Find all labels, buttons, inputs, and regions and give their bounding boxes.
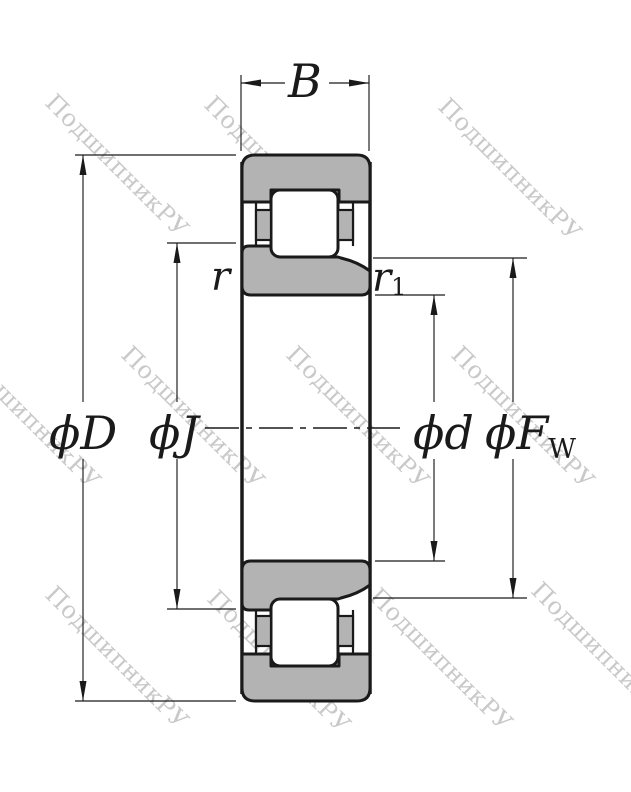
arrowhead-up bbox=[431, 295, 438, 315]
bearing-bottom-section bbox=[242, 561, 370, 701]
watermark-text: ПодшипникРУ bbox=[40, 88, 195, 243]
roller-top bbox=[271, 190, 338, 257]
label-width-B: B bbox=[287, 54, 322, 108]
arrowhead-right bbox=[349, 80, 369, 87]
label-bore-diameter: ϕd bbox=[413, 406, 474, 460]
arrowhead-left bbox=[241, 80, 261, 87]
cage-bar-right-bottom bbox=[338, 616, 353, 646]
label-outer-diameter: ϕD bbox=[49, 406, 117, 460]
cage-bar-right-top bbox=[338, 210, 353, 240]
arrowhead-down bbox=[80, 681, 87, 701]
arrowhead-up bbox=[80, 155, 87, 175]
arrowhead-down bbox=[510, 578, 517, 598]
bearing-drawing-canvas: ПодшипникРУ ПодшипникРУ ПодшипникРУ Подш… bbox=[0, 0, 631, 792]
roller-bottom bbox=[271, 599, 338, 666]
watermark-text: ПодшипникРУ bbox=[40, 580, 195, 735]
label-flange-diameter: ϕJ bbox=[149, 406, 201, 460]
label-chamfer-r: r bbox=[211, 254, 233, 300]
bearing-top-section bbox=[242, 155, 370, 295]
cage-bar-left-bottom bbox=[256, 616, 271, 646]
arrowhead-down bbox=[174, 589, 181, 609]
label-raceway-diameter: ϕFW bbox=[485, 406, 576, 465]
arrowhead-up bbox=[174, 243, 181, 263]
arrowhead-up bbox=[510, 258, 517, 278]
arrowhead-down bbox=[431, 541, 438, 561]
watermark-text: ПодшипникРУ bbox=[526, 576, 631, 731]
cage-bar-left-top bbox=[256, 210, 271, 240]
bearing-diagram: ПодшипникРУ ПодшипникРУ ПодшипникРУ Подш… bbox=[0, 0, 631, 792]
dimension-raceway-diameter: ϕFW bbox=[373, 258, 576, 598]
watermark-text: ПодшипникРУ bbox=[433, 92, 588, 247]
label-chamfer-r1: r1 bbox=[372, 255, 406, 301]
watermark-text: ПодшипникРУ bbox=[364, 582, 519, 737]
